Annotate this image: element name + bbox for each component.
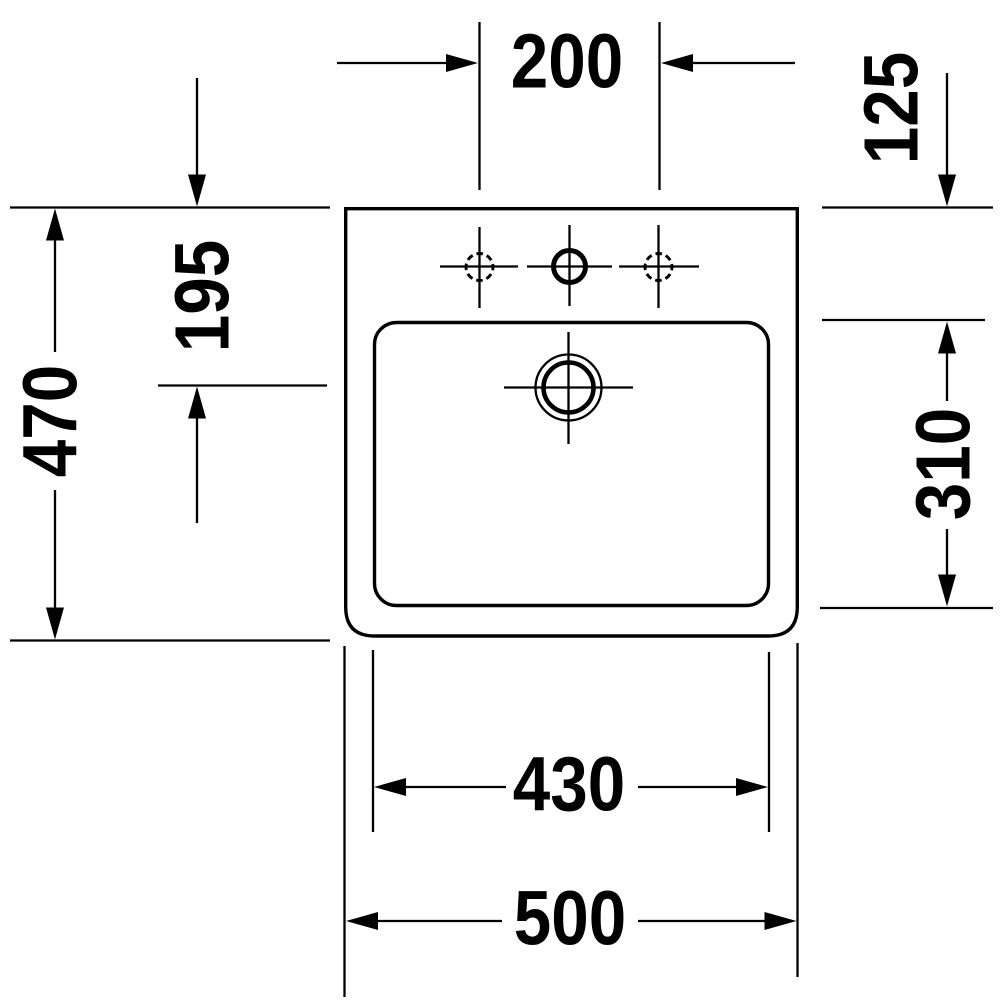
dim-470-arrow-down-icon: [46, 608, 64, 640]
dimension-195: 195: [160, 78, 245, 523]
dimension-200: 200: [337, 19, 795, 104]
drain: [504, 332, 633, 444]
dim-200-arrow-right-icon: [446, 54, 478, 72]
dim-200-arrow-left-icon: [661, 54, 693, 72]
dim-310-arrow-up-icon: [938, 322, 956, 354]
dim-label-125: 125: [849, 52, 934, 164]
dim-label-470: 470: [8, 365, 93, 477]
dimension-470: 470: [8, 209, 93, 640]
dim-label-310: 310: [901, 408, 986, 520]
technical-drawing-canvas: 200 125 195 470 310 430: [0, 0, 1000, 1000]
dim-310-arrow-down-icon: [938, 575, 956, 607]
dim-430-arrow-right-icon: [736, 778, 768, 796]
dim-label-200: 200: [511, 19, 623, 104]
dim-label-500: 500: [514, 876, 626, 961]
dimension-125: 125: [849, 52, 956, 207]
dimension-500: 500: [346, 876, 797, 961]
dim-label-195: 195: [160, 240, 245, 352]
washbasin-dimension-drawing: 200 125 195 470 310 430: [0, 0, 1000, 1000]
extension-lines: [10, 22, 993, 997]
dim-500-arrow-right-icon: [765, 912, 797, 930]
dim-195-arrow-up-icon: [188, 387, 206, 419]
dim-125-arrow-down-icon: [938, 175, 956, 207]
dim-500-arrow-left-icon: [346, 912, 378, 930]
dim-195-arrow-down-icon: [188, 175, 206, 207]
faucet-holes: [440, 225, 699, 308]
dim-430-arrow-left-icon: [374, 778, 406, 796]
dim-label-430: 430: [513, 742, 625, 827]
sink-outer-body: [346, 209, 798, 636]
dim-470-arrow-up-icon: [46, 209, 64, 241]
sink-outline: [346, 209, 798, 636]
dimension-430: 430: [374, 742, 768, 827]
dimension-310: 310: [901, 322, 986, 607]
